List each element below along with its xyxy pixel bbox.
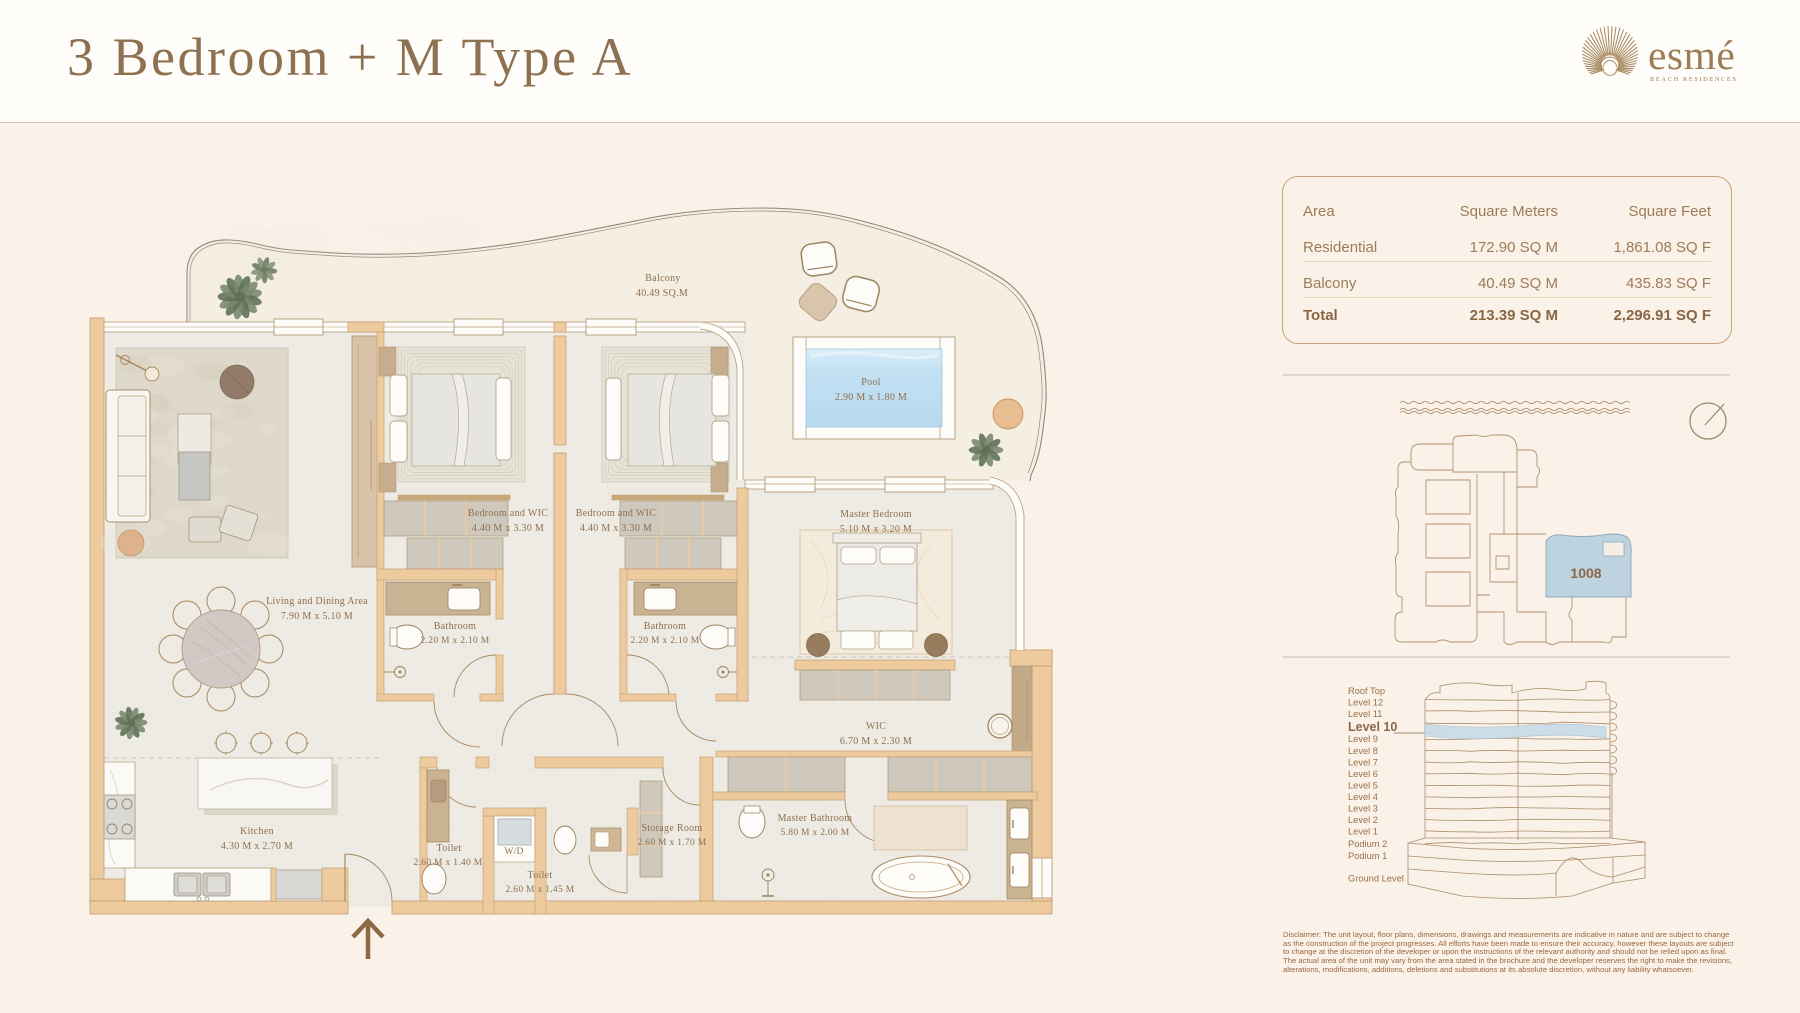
svg-text:WIC: WIC: [866, 721, 886, 732]
svg-text:Toilet: Toilet: [528, 870, 553, 881]
svg-text:Level 12: Level 12: [1348, 698, 1383, 708]
svg-text:Level 1: Level 1: [1348, 827, 1378, 837]
svg-text:Kitchen: Kitchen: [240, 826, 274, 837]
svg-text:Level 5: Level 5: [1348, 781, 1378, 791]
svg-text:Bathroom: Bathroom: [644, 621, 686, 632]
svg-text:Pool: Pool: [861, 377, 881, 388]
svg-text:Level 10: Level 10: [1348, 720, 1397, 734]
svg-text:2.60 M x 1.70 M: 2.60 M x 1.70 M: [638, 838, 707, 848]
svg-text:6.70 M x 2.30 M: 6.70 M x 2.30 M: [840, 736, 912, 747]
svg-text:5.10 M x 3.20 M: 5.10 M x 3.20 M: [840, 524, 912, 535]
svg-text:4.40 M x 3.30 M: 4.40 M x 3.30 M: [580, 523, 652, 534]
svg-text:Podium 1: Podium 1: [1348, 851, 1387, 861]
svg-text:Master Bedroom: Master Bedroom: [840, 509, 912, 520]
svg-text:2.20 M x 2.10 M: 2.20 M x 2.10 M: [421, 636, 490, 646]
svg-text:Podium 2: Podium 2: [1348, 839, 1387, 849]
svg-text:Level 7: Level 7: [1348, 758, 1378, 768]
svg-text:2.90 M x 1.80 M: 2.90 M x 1.80 M: [835, 392, 907, 403]
svg-text:Toilet: Toilet: [437, 843, 462, 854]
svg-text:Level 2: Level 2: [1348, 815, 1378, 825]
svg-text:Level 3: Level 3: [1348, 804, 1378, 814]
svg-text:Bedroom and WIC: Bedroom and WIC: [576, 508, 656, 519]
svg-text:W/D: W/D: [504, 847, 523, 857]
svg-text:Balcony: Balcony: [645, 273, 680, 284]
svg-text:5.80 M x 2.00 M: 5.80 M x 2.00 M: [781, 828, 850, 838]
svg-text:Level 8: Level 8: [1348, 746, 1378, 756]
svg-text:40.49 SQ.M: 40.49 SQ.M: [636, 288, 688, 299]
svg-text:4.30 M x 2.70 M: 4.30 M x 2.70 M: [221, 841, 293, 852]
svg-text:Level 6: Level 6: [1348, 769, 1378, 779]
svg-text:2.60 M x 1.40 M: 2.60 M x 1.40 M: [414, 858, 483, 868]
svg-text:7.90 M x 5.10 M: 7.90 M x 5.10 M: [281, 611, 353, 622]
svg-text:Bedroom and WIC: Bedroom and WIC: [468, 508, 548, 519]
svg-text:Bathroom: Bathroom: [434, 621, 476, 632]
svg-text:Level 4: Level 4: [1348, 792, 1378, 802]
svg-text:Storage Room: Storage Room: [641, 823, 702, 834]
svg-text:Level 9: Level 9: [1348, 734, 1378, 744]
svg-text:Level 11: Level 11: [1348, 709, 1382, 719]
svg-text:2.20 M x 2.10 M: 2.20 M x 2.10 M: [631, 636, 700, 646]
svg-text:1008: 1008: [1570, 565, 1601, 581]
svg-text:Ground Level: Ground Level: [1348, 874, 1404, 884]
svg-text:Master Bathroom: Master Bathroom: [778, 813, 853, 824]
svg-text:4.40 M x 3.30 M: 4.40 M x 3.30 M: [472, 523, 544, 534]
svg-text:Living and Dining Area: Living and Dining Area: [266, 596, 368, 607]
svg-text:2.60 M x 1.45 M: 2.60 M x 1.45 M: [506, 885, 575, 895]
svg-text:Roof Top: Roof Top: [1348, 686, 1385, 696]
